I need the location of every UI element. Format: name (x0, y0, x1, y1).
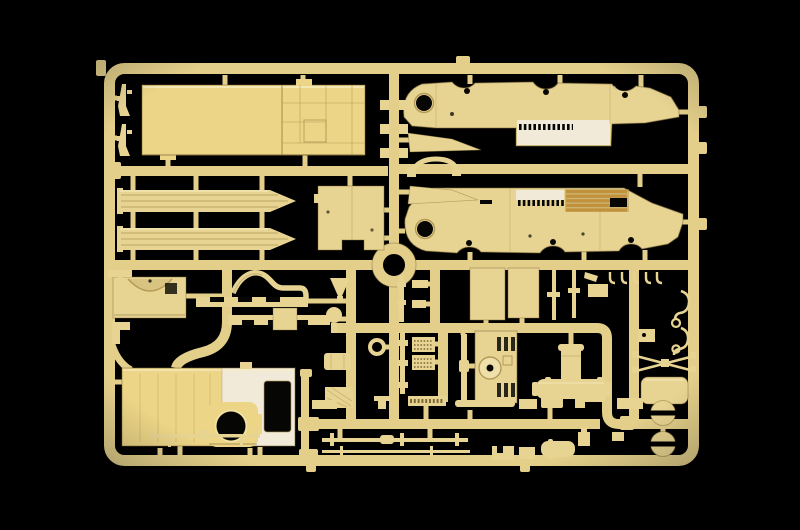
vignette-overlay (0, 0, 800, 530)
photo-stage (0, 0, 800, 530)
sprue-photo (0, 0, 800, 530)
